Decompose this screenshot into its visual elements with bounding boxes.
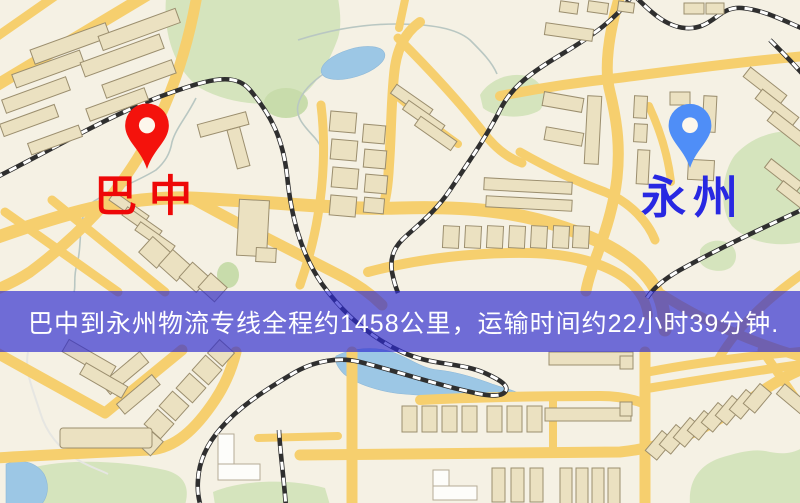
route-info-text: 巴中到永州物流专线全程约1458公里，运输时间约22小时39分钟. — [28, 304, 779, 340]
map-canvas — [0, 0, 800, 503]
destination-city-label: 永州 — [641, 175, 745, 220]
route-info-banner: 巴中到永州物流专线全程约1458公里，运输时间约22小时39分钟. — [0, 291, 800, 352]
origin-city-label: 巴中 — [94, 176, 204, 219]
map-image: 巴中 永州 巴中到永州物流专线全程约1458公里，运输时间约22小时39分钟. — [0, 0, 800, 503]
